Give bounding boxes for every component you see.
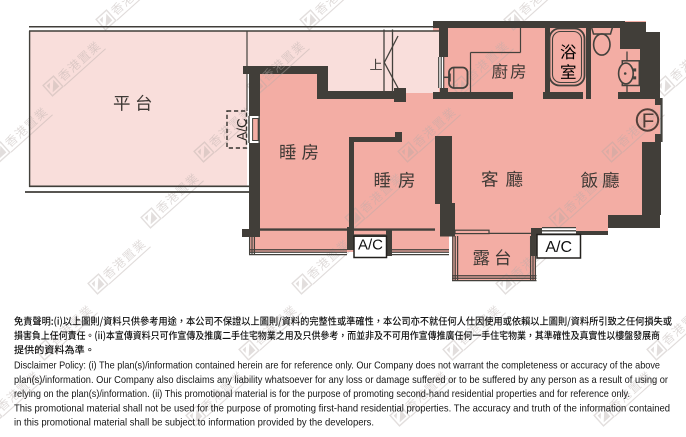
- svg-text:A/C: A/C: [235, 118, 250, 141]
- svg-text:A/C: A/C: [358, 237, 383, 254]
- svg-text:relying on the plan(s)/informa: relying on the plan(s)/information. (ii)…: [14, 388, 630, 400]
- svg-text:plan(s)/information. Our Compa: plan(s)/information. Our Company also di…: [14, 374, 668, 386]
- svg-text:A/C: A/C: [545, 239, 572, 256]
- svg-text:in this promotional material s: in this promotional material shall be su…: [14, 417, 374, 429]
- svg-text:This promotional material shal: This promotional material shall not be u…: [14, 402, 670, 414]
- svg-text:Disclaimer Policy: (i) The pla: Disclaimer Policy: (i) The plan(s)/infor…: [14, 360, 660, 372]
- svg-text:F: F: [642, 110, 655, 133]
